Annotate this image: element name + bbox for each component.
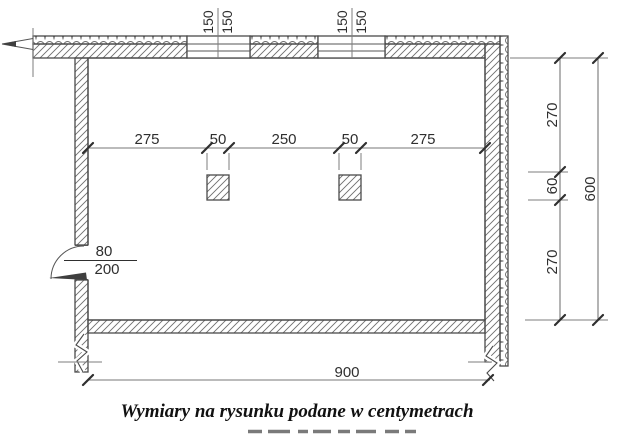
paper-background xyxy=(0,0,641,434)
dim-label-50-right: 50 xyxy=(342,131,359,148)
dim-label-600: 600 xyxy=(582,176,599,201)
wall-top xyxy=(33,36,500,58)
window-1-width-label: 150 xyxy=(200,10,216,34)
window-1-height-label: 150 xyxy=(219,10,235,34)
dim-label-270-bottom: 270 xyxy=(544,249,561,274)
plan-canvas: 150 150 150 150 275 50 250 50 275 270 60… xyxy=(0,0,641,434)
dim-label-275-left: 275 xyxy=(134,131,159,148)
wall-left xyxy=(75,58,88,372)
dim-label-250: 250 xyxy=(271,131,296,148)
window-2-height-label: 150 xyxy=(353,10,369,34)
drawing-caption: Wymiary na rysunku podane w centymetrach xyxy=(120,401,473,422)
dim-label-50-left: 50 xyxy=(210,131,227,148)
column-2 xyxy=(339,175,361,200)
dim-label-275-right: 275 xyxy=(410,131,435,148)
dim-label-270-top: 270 xyxy=(544,102,561,127)
column-1 xyxy=(207,175,229,200)
dim-label-60: 60 xyxy=(544,178,561,195)
door-width-label: 80 xyxy=(96,243,113,260)
wall-right xyxy=(485,36,508,366)
floor-plan-drawing: 150 150 150 150 275 50 250 50 275 270 60… xyxy=(0,0,641,434)
door-height-label: 200 xyxy=(94,261,119,278)
wall-bottom xyxy=(88,320,485,333)
dim-label-900: 900 xyxy=(334,364,359,381)
window-2-width-label: 150 xyxy=(334,10,350,34)
